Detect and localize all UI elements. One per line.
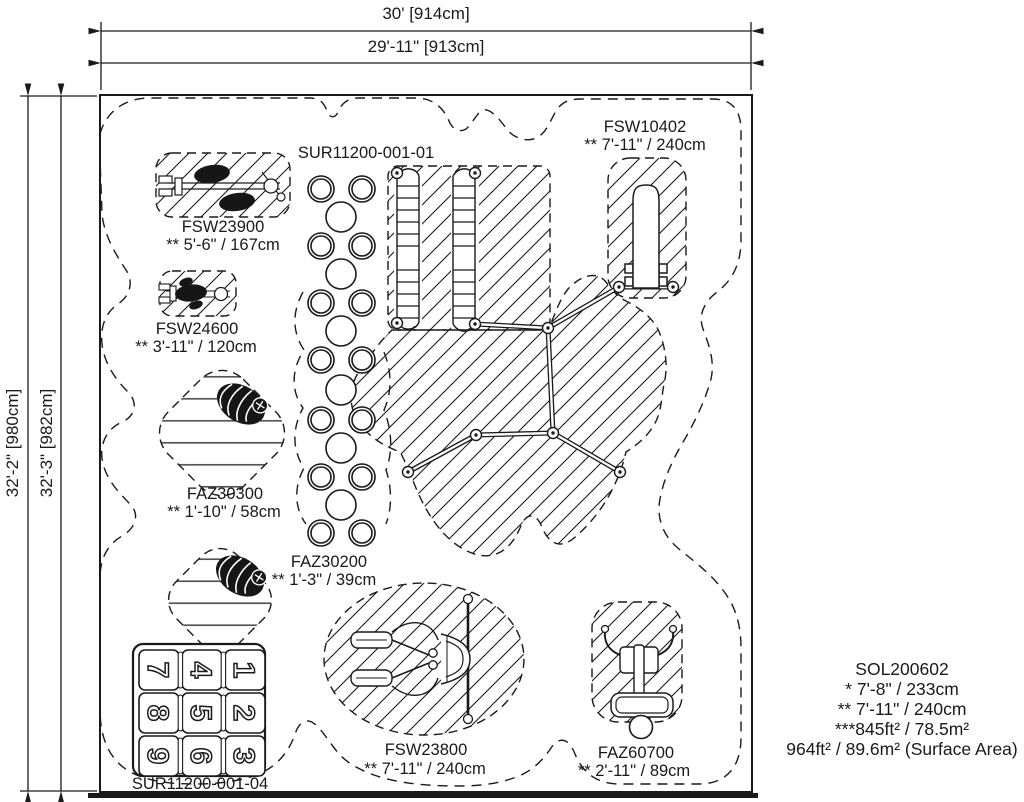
label-faz30200-spec: ** 1'-3" / 39cm bbox=[272, 571, 376, 589]
fsw23800-zone bbox=[324, 583, 524, 735]
label-fsw23800-spec: ** 7'-11" / 240cm bbox=[364, 760, 486, 778]
pod-pair bbox=[308, 407, 375, 433]
label-fsw10402-code: FSW10402 bbox=[604, 118, 687, 136]
hopscotch-number: 6 bbox=[184, 748, 217, 765]
pod-pair bbox=[308, 520, 375, 546]
label-fsw23900-spec: ** 5'-6" / 167cm bbox=[166, 236, 280, 254]
pod-single bbox=[326, 202, 356, 232]
pod-single bbox=[326, 375, 356, 405]
summary-line-1: * 7'-8" / 233cm bbox=[780, 679, 1024, 699]
summary-line-2: ** 7'-11" / 240cm bbox=[780, 699, 1024, 719]
hopscotch-number: 2 bbox=[227, 705, 260, 722]
label-fsw10402-spec: ** 7'-11" / 240cm bbox=[584, 136, 706, 154]
pod-single bbox=[326, 259, 356, 289]
dim-label-left-outer: 32'-2" [980cm] bbox=[3, 389, 23, 498]
label-faz60700-code: FAZ60700 bbox=[598, 744, 674, 762]
dim-label-top-inner: 29'-11" [913cm] bbox=[368, 38, 485, 56]
label-faz30300-spec: ** 1'-10" / 58cm bbox=[167, 503, 281, 521]
hopscotch-number: 9 bbox=[141, 748, 174, 765]
hopscotch-number: 7 bbox=[141, 662, 174, 679]
hopscotch-number: 3 bbox=[227, 748, 260, 765]
hopscotch-number: 1 bbox=[227, 662, 260, 679]
pod-single bbox=[326, 433, 356, 463]
summary-line-4: 964ft² / 89.6m² (Surface Area) bbox=[780, 739, 1024, 759]
pod-pair bbox=[308, 176, 375, 202]
hopscotch-number: 5 bbox=[184, 705, 217, 722]
label-faz60700-spec: ** 2'-11" / 89cm bbox=[578, 762, 690, 780]
playground-plan-drawing: 7 4 1 8 5 2 9 6 3 30' [914cm] 29'-11" [9… bbox=[0, 0, 1024, 802]
pod-pair bbox=[308, 290, 375, 316]
label-sur11200-001-04: SUR11200-001-04 bbox=[132, 775, 268, 793]
label-fsw23800-code: FSW23800 bbox=[385, 741, 468, 759]
pod-pair bbox=[308, 464, 375, 490]
label-fsw24600-spec: ** 3'-11" / 120cm bbox=[135, 338, 257, 356]
hopscotch-number: 4 bbox=[184, 662, 217, 679]
label-fsw23900-code: FSW23900 bbox=[182, 218, 265, 236]
summary-block: SOL200602 * 7'-8" / 233cm ** 7'-11" / 24… bbox=[780, 659, 1024, 759]
hopscotch-panel: 7 4 1 8 5 2 9 6 3 bbox=[133, 644, 265, 776]
boundary-wave-left-of-pods bbox=[294, 292, 306, 524]
pod-single bbox=[326, 490, 356, 520]
hopscotch-number: 8 bbox=[141, 705, 174, 722]
pod-pair bbox=[308, 347, 375, 373]
pod-single bbox=[326, 316, 356, 346]
pod-pair bbox=[308, 233, 375, 259]
stepping-pods bbox=[308, 176, 375, 546]
label-faz30300-code: FAZ30300 bbox=[187, 485, 263, 503]
summary-model: SOL200602 bbox=[780, 659, 1024, 679]
label-fsw24600-code: FSW24600 bbox=[156, 320, 239, 338]
label-faz30200-code: FAZ30200 bbox=[291, 553, 367, 571]
summary-line-3: ***845ft² / 78.5m² bbox=[780, 719, 1024, 739]
dim-label-left-inner: 32'-3" [982cm] bbox=[37, 389, 57, 498]
dim-label-top-outer: 30' [914cm] bbox=[382, 5, 469, 23]
label-sur11200-001-01: SUR11200-001-01 bbox=[298, 144, 434, 162]
hopscotch-numbers: 7 4 1 8 5 2 9 6 3 bbox=[141, 662, 260, 765]
